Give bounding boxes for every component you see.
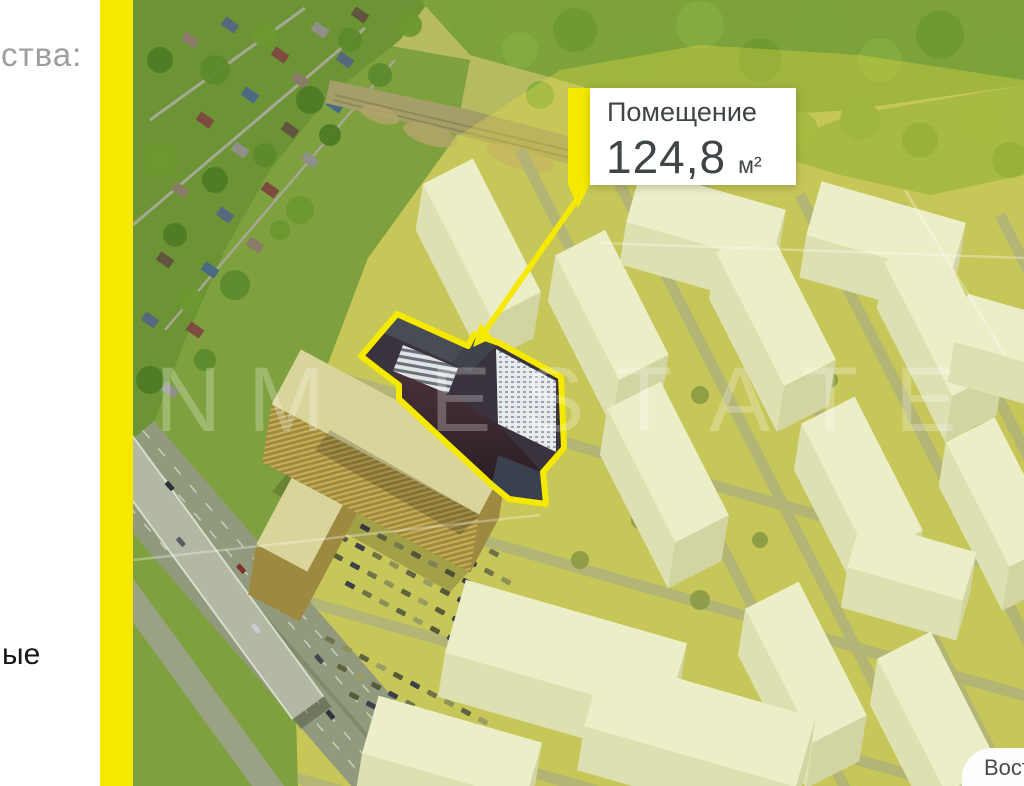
callout-accent-bar	[568, 88, 590, 185]
callout-title: Помещение	[607, 97, 796, 128]
area-callout: Помещение 124,8 м²	[568, 88, 796, 185]
accent-stripe	[100, 0, 133, 786]
left-panel: ства: ые	[0, 0, 100, 786]
slide: NMESTATE ства: ые Помещение 124,8 м² Вос…	[0, 0, 1024, 786]
district-label-text: Вост	[984, 755, 1024, 781]
callout-box: Помещение 124,8 м²	[590, 88, 796, 185]
area-unit: м²	[738, 152, 761, 179]
callout-value-row: 124,8 м²	[606, 130, 796, 184]
area-value: 124,8	[606, 130, 726, 184]
aerial-render-canvas	[0, 0, 1024, 786]
aerial-render	[0, 0, 1024, 786]
left-text-fragment-bottom: ые	[2, 638, 40, 672]
left-text-fragment-top: ства:	[1, 36, 82, 74]
